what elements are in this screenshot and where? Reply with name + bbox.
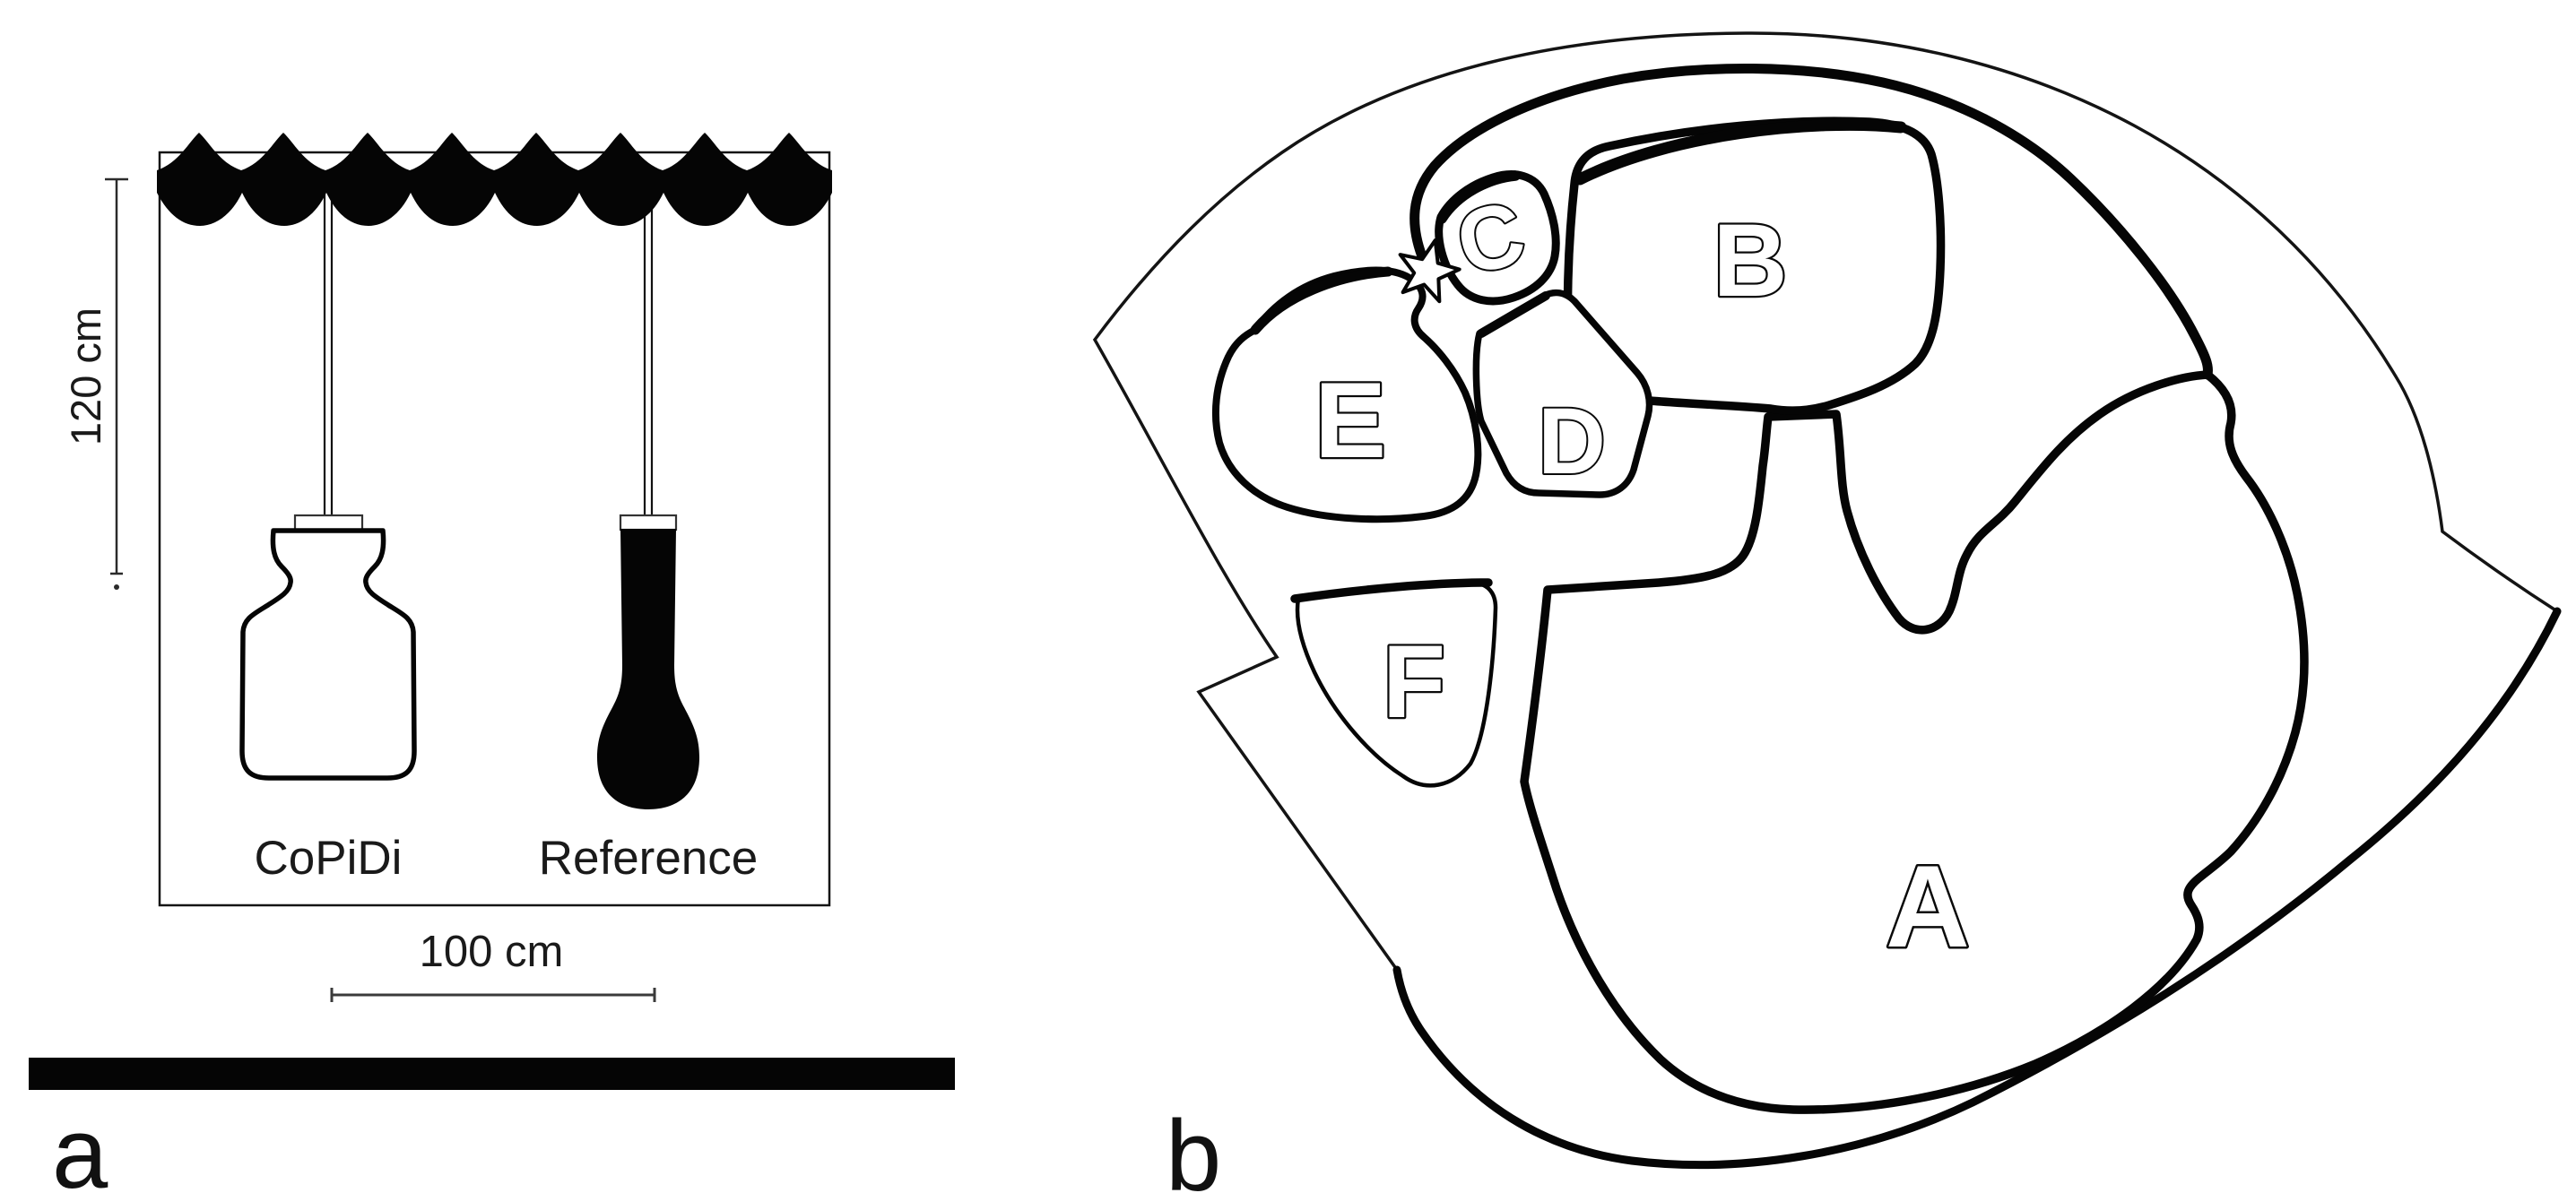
tank-outline <box>160 152 829 905</box>
seabed-bar <box>29 1058 955 1090</box>
panel-a: 120 cm CoPiDi Reference 100 cm <box>29 133 955 1193</box>
region-label-f: F <box>1383 625 1445 739</box>
copidi-label: CoPiDi <box>255 832 403 885</box>
two-panel-figure: 120 cm CoPiDi Reference 100 cm <box>0 0 2576 1193</box>
water-surface-icon <box>157 133 832 226</box>
panel-b: A B C D E F b <box>1095 33 2557 1193</box>
copidi-bottle <box>242 515 414 778</box>
region-label-b: B <box>1713 203 1787 318</box>
reference-label: Reference <box>539 832 759 885</box>
figure-canvas: 120 cm CoPiDi Reference 100 cm <box>0 0 2576 1193</box>
panel-a-label: a <box>52 1097 108 1193</box>
pond-a <box>1524 375 2304 1110</box>
region-label-a: A <box>1886 841 1970 972</box>
region-label-d: D <box>1538 389 1606 494</box>
suspension-wire-reference <box>645 193 652 516</box>
reference-probe <box>597 515 699 809</box>
suspension-wire-copidi <box>325 193 332 516</box>
reference-cap <box>620 515 676 530</box>
panel-b-label: b <box>1166 1100 1221 1193</box>
depth-label: 120 cm <box>62 307 109 445</box>
scale-label: 100 cm <box>420 928 564 976</box>
copidi-cap <box>295 515 362 530</box>
region-label-e: E <box>1314 360 1386 480</box>
dimension-end-dot <box>114 584 119 590</box>
scale-bar <box>332 988 655 1002</box>
